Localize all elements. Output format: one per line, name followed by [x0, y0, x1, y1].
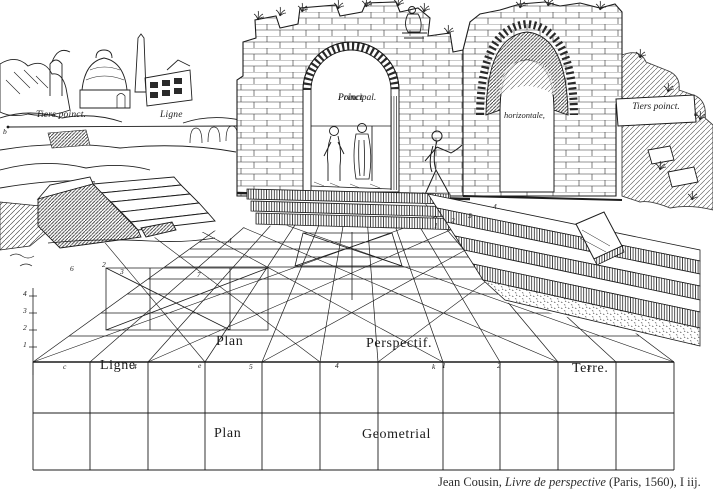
construction-figures: [29, 232, 402, 375]
label-plan-perspectif-2: Perspectif.: [366, 336, 432, 352]
construction-point-label: 6: [70, 265, 74, 272]
label-tiers-poinct-right: Tiers poinct.: [617, 102, 695, 112]
figure-caption: Jean Cousin, Livre de perspective (Paris…: [438, 475, 710, 490]
label-poinct-principal-line2: Principal.: [338, 93, 376, 104]
construction-point-label: 5: [249, 363, 253, 370]
rubble-right: [622, 49, 713, 210]
construction-point-label: 4: [493, 203, 497, 210]
construction-point-label: 4: [228, 237, 232, 244]
construction-point-label: e: [198, 362, 201, 369]
label-ligne-terre-1: Ligne: [100, 358, 136, 374]
construction-point-label: 4: [133, 363, 137, 370]
construction-point-label: 4: [23, 290, 27, 297]
construction-point-label: 4: [335, 362, 339, 369]
label-horizontale: horizontale,: [504, 110, 545, 120]
construction-point-label: 2: [497, 362, 501, 369]
engraving-artwork: [0, 0, 713, 499]
right-ruin-wall: [463, 0, 622, 200]
label-plan-geometrial-1: Plan: [214, 426, 241, 442]
engraving-plate: Tiers poinct. Ligne Poinct Principal. ho…: [0, 0, 713, 499]
construction-point-label: 1: [23, 341, 27, 348]
construction-point-label: 1: [434, 222, 438, 229]
construction-point-label: a: [694, 110, 698, 117]
left-staircase: [38, 177, 215, 248]
label-plan-perspectif-1: Plan: [216, 334, 243, 350]
label-ligne-horizontale: Ligne: [160, 110, 183, 120]
construction-point-label: 2: [23, 324, 27, 331]
construction-point-label: k: [432, 363, 435, 370]
label-plan-geometrial-2: Geometrial: [362, 427, 431, 443]
caption-book-title: Livre de perspective: [505, 475, 606, 489]
construction-point-label: b: [3, 128, 7, 135]
caption-imprint: (Paris, 1560), I iij.: [606, 475, 701, 489]
construction-point-label: 1: [442, 362, 446, 369]
construction-point-label: 3: [120, 268, 124, 275]
construction-point-label: 7: [197, 271, 201, 278]
construction-point-label: 3: [468, 212, 472, 219]
construction-point-label: 3: [587, 364, 591, 371]
construction-point-label: 3: [23, 307, 27, 314]
construction-point-label: 2: [451, 217, 455, 224]
geometric-plan-grid: [33, 362, 674, 470]
construction-point-label: c: [63, 363, 66, 370]
label-tiers-poinct-left: Tiers poinct.: [36, 110, 86, 120]
caption-author: Jean Cousin,: [438, 475, 505, 489]
construction-point-label: 2: [102, 261, 106, 268]
